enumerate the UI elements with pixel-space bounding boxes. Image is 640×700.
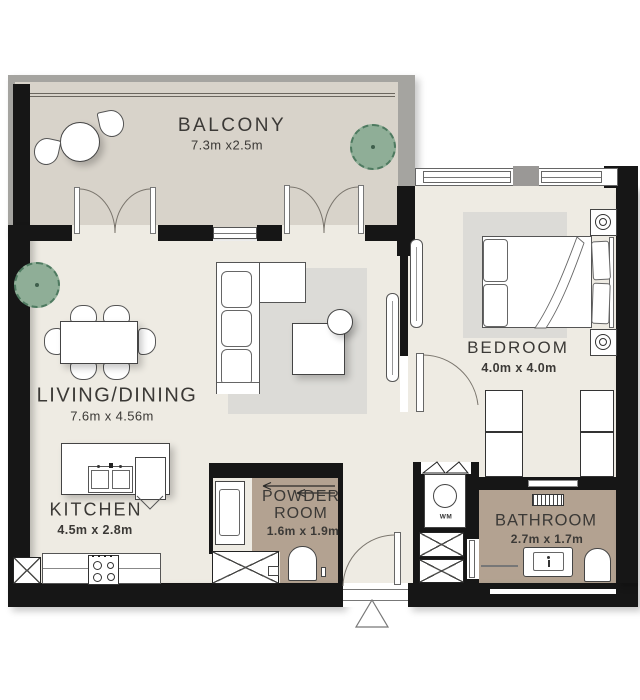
room-dims-bathroom: 2.7m x 1.7m bbox=[511, 532, 583, 546]
balcony-side-wall bbox=[13, 84, 30, 235]
wardrobe bbox=[485, 390, 523, 477]
wall-bottom-left bbox=[8, 583, 343, 607]
wall-balcony-seg-1 bbox=[30, 225, 72, 241]
powder-small-box bbox=[268, 566, 279, 576]
pillow bbox=[591, 241, 611, 281]
bathroom-glass-panel bbox=[528, 480, 578, 487]
bedroom-window-2-mullion bbox=[542, 177, 601, 178]
sink-tap bbox=[97, 465, 100, 468]
mirror-line bbox=[392, 301, 393, 375]
wall-powder-left bbox=[209, 478, 213, 554]
bathroom-toilet bbox=[584, 548, 611, 582]
bed-bench-cushion bbox=[483, 284, 508, 327]
french-door-leaf bbox=[150, 187, 156, 234]
bed-bench-cushion bbox=[483, 239, 508, 282]
utility-unit bbox=[419, 532, 464, 557]
entrance-threshold bbox=[343, 583, 408, 607]
sink-basin bbox=[112, 470, 130, 489]
side-table bbox=[327, 309, 353, 335]
wall-balcony-seg-3 bbox=[257, 225, 282, 241]
balcony-wall-right bbox=[398, 75, 415, 186]
shower-drain-line bbox=[481, 565, 518, 567]
room-label-bathroom: BATHROOM bbox=[495, 512, 597, 531]
threshold-line bbox=[343, 600, 408, 601]
pillow bbox=[591, 283, 610, 325]
wardrobe bbox=[580, 390, 614, 477]
living-window bbox=[213, 227, 257, 239]
sofa-cushion bbox=[221, 349, 252, 386]
french-door-leaf bbox=[358, 185, 364, 234]
room-dims-powder: 1.6m x 1.9m bbox=[267, 524, 339, 538]
room-label-powder-line2: ROOM bbox=[274, 505, 328, 523]
wall-bottom-right bbox=[408, 583, 638, 607]
balcony-door-threshold-1 bbox=[72, 225, 158, 241]
wall-right bbox=[616, 186, 638, 583]
powder-toilet bbox=[288, 546, 317, 581]
towel-radiator bbox=[532, 494, 564, 506]
bedroom-window-2 bbox=[541, 171, 602, 183]
balcony-railing-line bbox=[30, 93, 395, 97]
bottom-sill-line bbox=[490, 589, 616, 594]
dining-table bbox=[60, 321, 138, 364]
wardrobe-divider bbox=[581, 431, 613, 433]
washer-closet-opening bbox=[421, 462, 471, 474]
sink-faucet bbox=[109, 463, 113, 468]
kitchen-sink bbox=[88, 466, 133, 493]
bathroom-door-leaf bbox=[469, 540, 475, 578]
powder-sink bbox=[219, 489, 240, 536]
burner bbox=[107, 562, 114, 569]
burner bbox=[93, 573, 102, 582]
bedroom-door-leaf bbox=[416, 353, 424, 412]
burner bbox=[93, 561, 102, 570]
washer-drum bbox=[433, 484, 457, 508]
window-pier bbox=[513, 166, 539, 186]
plant-center bbox=[371, 145, 375, 149]
stove-knobs bbox=[92, 555, 116, 557]
mirror-line bbox=[416, 247, 417, 321]
room-dims-balcony: 7.3m x2.5m bbox=[191, 138, 263, 153]
sofa-cushion bbox=[221, 271, 252, 308]
wall-balcony-seg-2 bbox=[158, 225, 213, 241]
washer-label: WM bbox=[440, 514, 453, 521]
room-dims-kitchen: 4.5m x 2.8m bbox=[57, 523, 132, 537]
wall-powder-top bbox=[209, 463, 340, 478]
nightstand bbox=[590, 209, 617, 236]
headboard bbox=[609, 237, 614, 328]
sofa-cushion bbox=[221, 310, 252, 347]
bathroom-faucet bbox=[547, 556, 550, 559]
entrance-door-leaf bbox=[394, 532, 401, 585]
balcony-railing-top bbox=[8, 75, 415, 82]
plant-center bbox=[35, 283, 39, 287]
lamp-symbol-inner bbox=[599, 338, 607, 346]
french-door-leaf bbox=[284, 185, 290, 234]
balcony-plant bbox=[350, 124, 396, 170]
mirror-panel-living bbox=[386, 293, 399, 382]
living-window-mullion bbox=[214, 233, 256, 234]
powder-vanity bbox=[215, 481, 245, 545]
washer-box: WM bbox=[424, 474, 466, 528]
sink-basin bbox=[91, 470, 109, 489]
sink-tap bbox=[119, 465, 122, 468]
fridge-unit bbox=[13, 557, 41, 584]
hallway-area-lower bbox=[343, 463, 415, 583]
stove bbox=[88, 555, 119, 585]
bedroom-window-1-mullion bbox=[424, 177, 510, 178]
balcony-table bbox=[60, 122, 100, 162]
room-label-bedroom: BEDROOM bbox=[467, 338, 569, 358]
room-label-kitchen: KITCHEN bbox=[49, 500, 142, 521]
sofa-armrest bbox=[217, 382, 259, 394]
room-dims-bedroom: 4.0m x 4.0m bbox=[481, 361, 556, 375]
bedroom-window-1 bbox=[423, 171, 511, 183]
floor-plan: WM bbox=[0, 0, 640, 700]
room-label-living-dining: LIVING/DINING bbox=[37, 385, 198, 408]
room-label-balcony: BALCONY bbox=[178, 115, 286, 137]
bathroom-faucet-stem bbox=[548, 560, 550, 567]
utility-unit bbox=[419, 559, 464, 583]
wall-divider-thin bbox=[400, 256, 408, 356]
dishwasher bbox=[135, 457, 166, 500]
lamp-symbol-inner bbox=[599, 218, 607, 226]
nightstand bbox=[590, 329, 617, 356]
wall-powder-right bbox=[338, 463, 343, 583]
balcony-door-threshold-2 bbox=[282, 225, 365, 241]
bathroom-vanity bbox=[523, 547, 573, 577]
french-door-leaf bbox=[74, 187, 80, 234]
powder-small-box bbox=[321, 567, 326, 577]
room-label-powder-line1: POWDER bbox=[262, 488, 340, 506]
living-plant bbox=[14, 262, 60, 308]
room-dims-living-dining: 7.6m x 4.56m bbox=[70, 409, 154, 424]
mirror-panel-bedroom bbox=[410, 239, 423, 328]
burner bbox=[107, 573, 115, 581]
wardrobe-divider bbox=[486, 431, 522, 433]
threshold-line bbox=[343, 589, 408, 590]
